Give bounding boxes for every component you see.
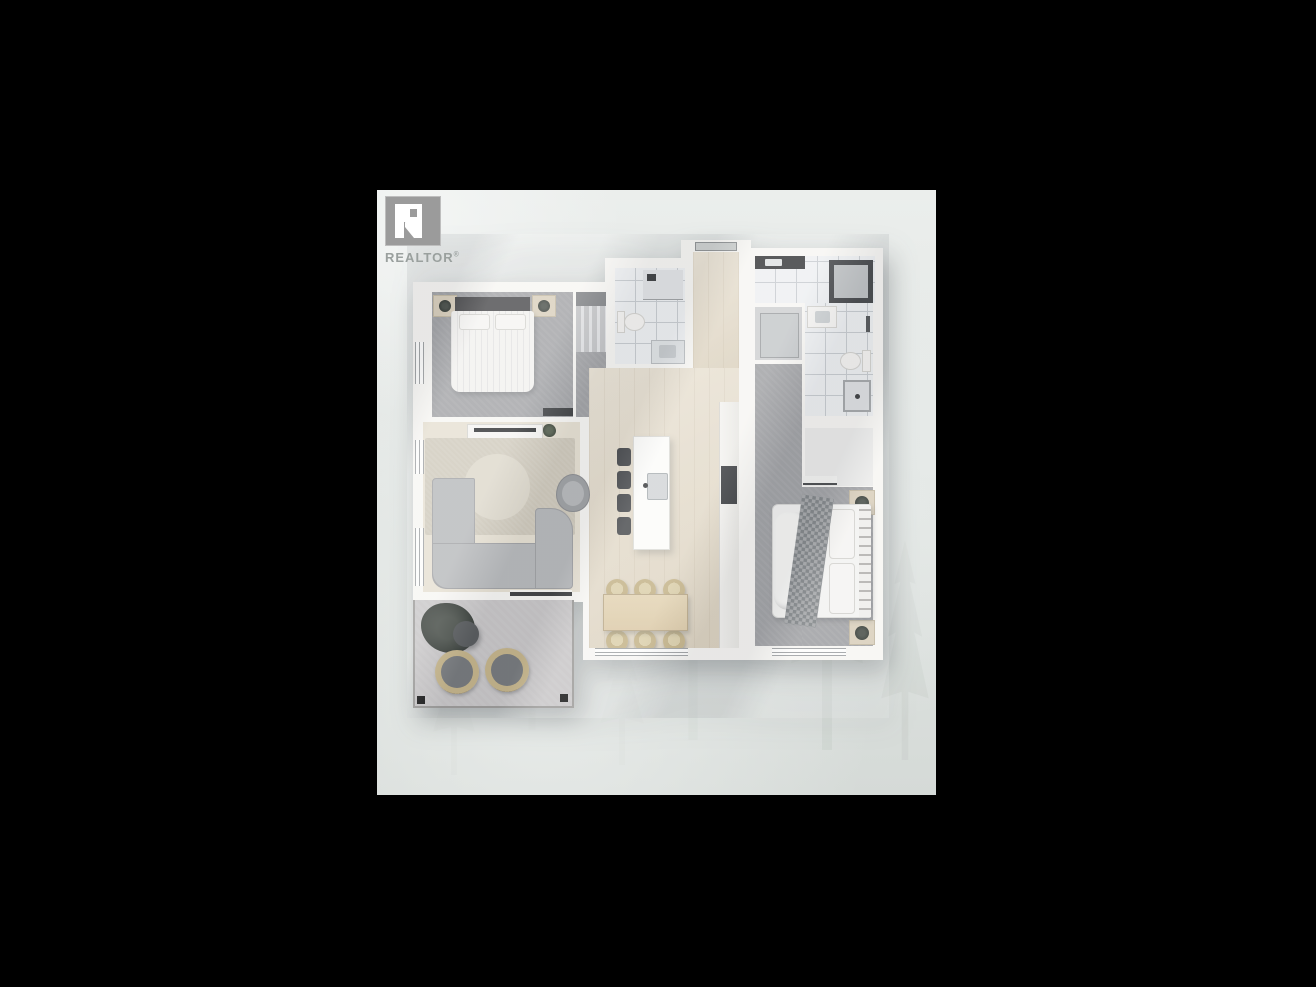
armchair [556,474,590,512]
realtor-watermark: REALTOR® [385,196,460,265]
bed2-pillow [829,509,855,559]
bed1-headboard [455,297,530,312]
patio-chair [435,650,479,694]
patio [413,600,574,708]
laundry-sink [765,259,782,266]
window [415,528,424,586]
closet-shelf [576,292,606,306]
realtor-logo-icon [385,196,441,246]
patio-chair-cushion [441,656,473,688]
kitchen-counter [719,402,739,648]
island-faucet [643,483,648,488]
armchair-cushion [562,481,584,506]
walkin-closet-cabinet [760,313,799,358]
entry-hall-floor [693,252,739,370]
island-sink [647,473,668,500]
patio-chair-cushion [491,654,523,686]
nook-shelf [803,476,837,485]
washer-dryer [829,260,873,303]
window [415,440,424,474]
window [595,648,688,656]
shower-head [647,274,656,281]
ensuite-toilet-bowl [840,352,861,370]
patio-side-table [453,621,479,647]
bed2-headboard [859,506,871,617]
vanity-sink [659,345,676,358]
patio-sliding-door [510,590,572,598]
railing-post [417,696,425,704]
nightstand-plant [855,626,869,640]
bar-stool [617,494,631,512]
ensuite-vanity [807,306,837,328]
living-plant [543,424,556,437]
bar-stool [617,517,631,535]
railing-post [560,694,568,702]
bar-stool [617,448,631,466]
window [415,342,424,384]
washer-door [834,265,868,298]
ensuite-sink [815,311,830,323]
bed1-pillow [495,314,526,330]
ensuite-toilet-tank [862,350,871,372]
bed1-pillow [459,314,490,330]
bed2-pillow [829,563,855,614]
bar-stool [617,471,631,489]
sofa-chaise [535,508,573,589]
sectional-sofa [432,478,573,589]
towel-bar [866,316,870,332]
cooktop [721,466,737,504]
laundry-counter [755,256,805,269]
entry-door [695,242,737,251]
kitchen-island [633,436,670,550]
realtor-logo-text: REALTOR® [385,250,460,265]
shower-drain [855,394,860,399]
viewer-canvas: REALTOR® [0,0,1316,987]
nightstand-plant [439,300,451,312]
nightstand-plant [538,300,550,312]
registered-mark: ® [454,252,460,259]
window [772,648,846,656]
bedroom1-dresser [543,408,573,416]
patio-chair [485,648,529,692]
toilet-bowl [624,313,645,331]
ensuite-shower [843,380,871,412]
tv [474,428,536,432]
bath-vanity [651,340,685,364]
floor-plan [377,190,936,795]
realtor-r-glyph [386,197,440,245]
dining-table [603,594,688,631]
listing-photo[interactable]: REALTOR® [377,190,936,795]
